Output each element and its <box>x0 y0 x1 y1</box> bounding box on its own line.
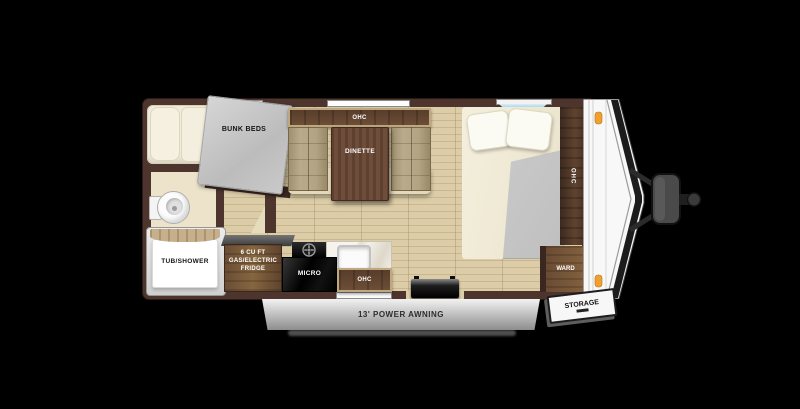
marker-light-top <box>595 112 602 124</box>
toilet-drain <box>172 206 177 211</box>
storage-handle <box>576 308 588 312</box>
power-awning: 13' POWER AWNING <box>262 299 540 330</box>
microwave-label: MICRO <box>282 270 337 277</box>
awning-label: 13' POWER AWNING <box>358 310 444 319</box>
shower-curtain <box>150 229 220 242</box>
wardrobe: WARD <box>540 246 585 292</box>
floorplan-canvas: BUNK BEDS TUB/SHOWER OHC DINETTE 6 CU FT… <box>0 0 800 409</box>
tub-shower-label: TUB/SHOWER <box>150 258 220 265</box>
dinette-bench-right <box>391 127 431 191</box>
bed-ohc-label: OHC <box>570 168 576 184</box>
awning-shadow <box>288 330 516 336</box>
bunk-cushion-left <box>150 107 180 161</box>
kitchen-overhead-cabinet: OHC <box>337 268 392 292</box>
bed-overhead-cabinet: OHC <box>560 107 585 245</box>
sink <box>337 245 371 270</box>
dinette-overhead-cabinet: OHC <box>288 108 431 127</box>
dinette-bench-left <box>288 127 328 191</box>
bed-pillow-left <box>466 109 513 151</box>
bunk-beds-label: BUNK BEDS <box>209 126 279 133</box>
stove-burner-icon <box>302 243 316 257</box>
dinette-table <box>331 127 389 201</box>
fridge-label: 6 CU FT GAS/ELECTRIC FRIDGE <box>224 250 282 273</box>
marker-light-bottom <box>595 275 602 287</box>
dinette-ohc-label: OHC <box>352 115 366 121</box>
window-dinette <box>327 100 410 107</box>
hitch-assembly <box>628 158 708 242</box>
kitchen-ohc-label: OHC <box>357 277 371 283</box>
entry-step <box>411 279 459 298</box>
window-kitchen <box>336 292 392 299</box>
bunk-mattress <box>197 95 293 195</box>
dinette-label: DINETTE <box>331 148 389 155</box>
hitch-ball <box>688 193 701 206</box>
wardrobe-label: WARD <box>556 266 574 272</box>
bed-pillow-right <box>505 107 553 151</box>
